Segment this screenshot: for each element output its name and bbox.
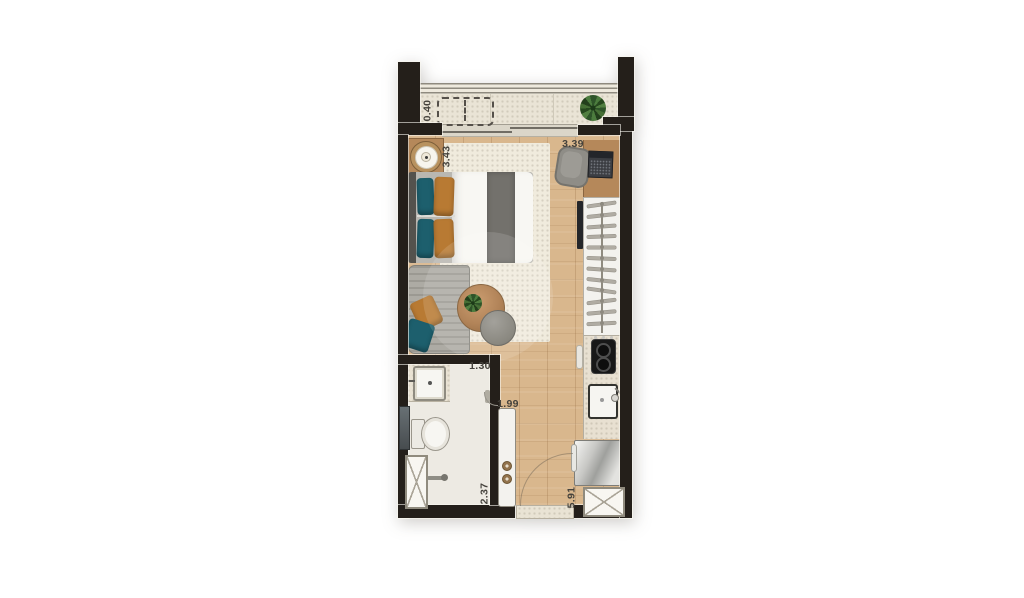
hanger-icon	[587, 287, 616, 294]
hanger-icon	[587, 235, 616, 239]
burner-icon	[596, 357, 611, 372]
lamp-shade	[415, 146, 438, 169]
hanger-icon	[587, 298, 616, 304]
toilet-icon	[411, 417, 449, 450]
pillow-teal-icon	[416, 219, 434, 259]
closet-rack	[584, 198, 619, 336]
laptop-keyboard	[590, 160, 612, 176]
hanger-icon	[587, 224, 616, 229]
pouf-ottoman	[480, 310, 516, 346]
hanger-icon	[587, 321, 616, 325]
wall	[398, 62, 420, 125]
pillow-orange-icon	[433, 177, 454, 217]
cooktop-knob	[594, 336, 597, 339]
door-knob-icon	[502, 461, 512, 471]
burner-icon	[596, 343, 611, 358]
laptop-icon	[588, 151, 614, 179]
planter-divider	[464, 100, 466, 121]
washbasin-icon	[413, 366, 446, 401]
dim-bathroom-depth: 2.37	[478, 476, 491, 512]
pillow-teal-icon	[416, 178, 434, 216]
dim-bathroom-width: 1.30	[462, 359, 498, 372]
sliding-door-panel	[498, 408, 516, 507]
wall	[620, 117, 632, 518]
headboard	[408, 172, 416, 263]
cooktop-knob	[610, 336, 613, 339]
floor-plan: 0.40 3.43 3.39 1.30 1.99 2.37 5.91	[0, 0, 1024, 598]
sliding-door-panel-track	[510, 127, 578, 129]
towel-bar-cap	[441, 474, 448, 481]
sliding-door-panel-track	[442, 131, 512, 133]
wall	[618, 57, 634, 123]
cooktop-knob	[602, 336, 605, 339]
lamp-center	[421, 152, 431, 162]
dim-study-wall: 3.39	[555, 137, 591, 150]
dim-bedroom-width: 3.43	[440, 139, 453, 175]
hanger-icon	[587, 201, 616, 208]
toilet-bowl	[421, 417, 450, 451]
chair-seat	[559, 150, 583, 179]
dim-hall-width: 1.99	[490, 397, 526, 410]
table-plant-icon	[464, 294, 482, 312]
shower-glass-panel	[399, 406, 410, 450]
dim-unit-depth: 5.91	[565, 480, 578, 516]
dim-balcony-depth: 0.40	[421, 93, 434, 129]
wardrobe-closet	[583, 197, 622, 339]
sink-drain	[600, 398, 604, 402]
hanger-icon	[587, 267, 616, 272]
bathroom-duct-shaft	[405, 455, 428, 509]
kitchen-duct-shaft	[583, 487, 625, 517]
door-knob-icon	[502, 474, 512, 484]
table-lamp-icon	[410, 141, 442, 173]
kitchen-faucet-icon	[611, 394, 619, 402]
hanger-icon	[587, 212, 616, 218]
hanger-icon	[587, 277, 616, 283]
cooktop-icon	[591, 339, 616, 374]
balcony-planter-dashed	[437, 97, 494, 126]
balcony-floor-joint	[553, 94, 554, 127]
balcony-railing	[420, 83, 618, 94]
floor-plan-canvas: 0.40 3.43 3.39 1.30 1.99 2.37 5.91	[0, 0, 1024, 598]
laptop-screen	[589, 152, 612, 159]
refrigerator	[574, 440, 621, 486]
basin-drain	[428, 381, 432, 385]
wall	[578, 125, 620, 135]
hanger-icon	[587, 256, 616, 260]
tv-panel	[577, 201, 583, 249]
cabinet-handle	[576, 345, 583, 369]
hanger-icon	[587, 246, 616, 249]
hanger-icon	[587, 310, 616, 315]
